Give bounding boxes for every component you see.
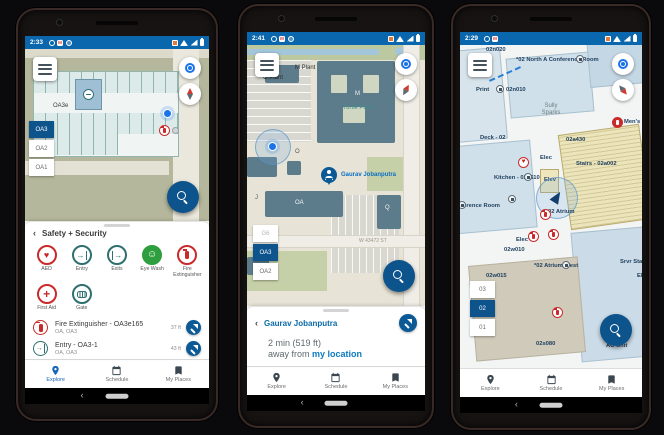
gate-icon (77, 291, 87, 298)
indoor-map[interactable]: 02n020 *02 North A Conference Room Print… (460, 45, 642, 368)
battery-icon (633, 35, 637, 42)
menu-button[interactable] (33, 57, 57, 81)
bottom-nav: Explore Schedule My Places (25, 359, 209, 388)
battery-icon (416, 35, 420, 42)
campus-map[interactable]: M Plant O Plant M Turtle Pond O OA J Q W… (247, 45, 425, 306)
locate-button[interactable] (612, 53, 634, 75)
map-pin-icon (50, 365, 61, 376)
room-label: Stairs - 02a002 (576, 161, 617, 167)
fire-extinguisher-marker[interactable] (552, 307, 563, 318)
exit-icon: → (112, 251, 123, 260)
highlighted-room[interactable] (75, 79, 102, 110)
front-camera (56, 19, 63, 26)
android-back-icon[interactable]: ‹ (81, 391, 84, 400)
room-label: 02s080 (536, 341, 555, 347)
search-button[interactable] (167, 181, 199, 213)
fire-extinguisher-marker[interactable] (528, 231, 539, 242)
sheet-drag-handle[interactable] (323, 309, 349, 312)
map-label: M (355, 91, 360, 97)
room-label: Deck - 02 (480, 135, 505, 141)
category-exits[interactable]: → Exits (99, 243, 134, 282)
gmail-icon: M (492, 36, 498, 42)
clock-icon (271, 36, 277, 42)
floor-chip-oa2[interactable]: OA2 (29, 140, 54, 157)
kitchen-icon[interactable] (524, 173, 532, 181)
room-label: OA3e (53, 103, 68, 109)
room-label: Print (476, 87, 489, 93)
phone-2: 2:41 M (238, 4, 434, 428)
sheet-drag-handle[interactable] (104, 224, 130, 227)
bookmark-icon (173, 365, 184, 376)
person-marker[interactable] (321, 167, 337, 183)
locate-button[interactable] (395, 53, 417, 75)
signal-icon (191, 40, 198, 46)
fire-extinguisher-marker[interactable] (159, 125, 170, 136)
tab-schedule[interactable]: Schedule (86, 360, 147, 388)
map-pin-icon (271, 372, 282, 383)
locate-button[interactable] (179, 57, 201, 79)
floor-selector: G6 OA3 OA2 (253, 225, 278, 280)
home-pill[interactable] (540, 403, 563, 408)
directions-button[interactable] (186, 320, 201, 335)
room-block (460, 140, 538, 235)
floor-selector: OA3 OA2 OA1 (29, 121, 54, 176)
tab-explore[interactable]: Explore (247, 367, 306, 395)
list-item[interactable]: → Entry - OA3-1 OA, OA3 43 ft (33, 338, 201, 359)
signal-icon (624, 36, 631, 42)
tab-schedule[interactable]: Schedule (521, 369, 582, 397)
floor-chip-02[interactable]: 02 (470, 300, 495, 317)
compass-button[interactable] (395, 79, 417, 101)
search-button[interactable] (600, 314, 632, 346)
map-label: Turtle Pond (343, 105, 374, 111)
indoor-map[interactable]: OA3e OA3 OA2 OA1 (25, 49, 209, 221)
cluster-dot[interactable] (172, 127, 179, 134)
signal-icon (407, 36, 414, 42)
room-label: *02 North A Conference Room (516, 57, 599, 63)
room-label: Men's - 02a330 (624, 119, 642, 125)
route-panel: ‹ Gaurav Jobanputra 2 min (519 ft) away … (247, 306, 425, 366)
eta-text: 2 min (519 ft) (247, 335, 425, 348)
map-label: M Plant (295, 65, 315, 71)
bookmark-icon (390, 372, 401, 383)
screenshot-stage: 2:33 M (0, 0, 664, 435)
back-icon[interactable]: ‹ (33, 229, 36, 238)
category-fire-extinguisher[interactable]: Fire Extinguisher (170, 243, 205, 282)
back-icon[interactable]: ‹ (255, 319, 258, 328)
fire-extinguisher-marker[interactable] (548, 229, 559, 240)
phone-3: 2:29 M 02n020 (451, 4, 651, 430)
room-label: 02w010 (504, 247, 525, 253)
building (377, 195, 401, 229)
compass-button[interactable] (179, 83, 201, 105)
tab-explore[interactable]: Explore (460, 369, 521, 397)
aed-icon: ♥ (44, 251, 49, 260)
tab-schedule[interactable]: Schedule (306, 367, 365, 395)
room-label: Kitchen - 02a510 (494, 175, 540, 181)
floor-chip-oa1[interactable]: OA1 (29, 159, 54, 176)
clock-icon (49, 40, 55, 46)
room-row (34, 113, 178, 134)
room-label: Elec (516, 237, 528, 243)
item-title: Entry - OA3-1 (55, 342, 171, 349)
item-distance: 43 ft (171, 346, 181, 352)
tab-my-places[interactable]: My Places (148, 360, 209, 388)
wifi-icon (396, 36, 404, 42)
my-location-link[interactable]: my location (312, 349, 362, 359)
calendar-icon (330, 372, 341, 383)
building (317, 61, 395, 143)
speaker (315, 17, 357, 21)
person-marker-label: Gaurav Jobanputra (341, 172, 396, 178)
calendar-icon (546, 374, 557, 385)
floor-chip-oa2[interactable]: OA2 (253, 263, 278, 280)
fire-extinguisher-icon (185, 251, 189, 259)
conference-room-icon[interactable] (576, 55, 584, 63)
list-item[interactable]: Fire Extinguisher - OA3e165 OA, OA3 37 f… (33, 317, 201, 338)
status-time: 2:41 (252, 35, 265, 42)
bookmark-icon (606, 374, 617, 385)
elevator-icon (83, 89, 94, 100)
directions-icon (190, 324, 198, 332)
room-label: 02n020 (486, 47, 506, 53)
safety-security-panel: ‹ Safety + Security ♥ AED → Entry → Exit… (25, 221, 209, 359)
map-label: O (295, 149, 300, 155)
map-label: J (255, 195, 258, 201)
gmail-icon: M (279, 36, 285, 42)
clock-icon (484, 36, 490, 42)
atrium-icon[interactable] (562, 261, 570, 269)
android-back-icon[interactable]: ‹ (515, 400, 518, 409)
room-label: Srvr Staging (620, 259, 642, 265)
floor-chip-01[interactable]: 01 (470, 319, 495, 336)
gesture-bar: ‹ (25, 388, 209, 404)
gesture-bar: ‹ (460, 397, 642, 413)
front-camera (491, 15, 498, 22)
restroom-marker[interactable] (612, 117, 623, 128)
entry-icon: → (36, 344, 46, 353)
status-bar: 2:33 M (25, 36, 209, 49)
item-subtitle: OA, OA3 (55, 329, 171, 335)
category-grid: ♥ AED → Entry → Exits ☺ Eye Wash (25, 241, 209, 317)
status-bar: 2:29 M (460, 32, 642, 45)
bottom-nav: Explore Schedule My Places (460, 368, 642, 397)
street-label: W 43472 ST (359, 238, 387, 244)
fire-extinguisher-marker[interactable] (540, 209, 551, 220)
item-subtitle: OA, OA3 (55, 350, 171, 356)
speaker (530, 17, 572, 21)
category-entry[interactable]: → Entry (64, 243, 99, 282)
screenshot-icon (605, 36, 611, 42)
entry-icon: → (77, 251, 88, 260)
phone-1: 2:33 M (16, 8, 218, 421)
map-pin-icon (485, 374, 496, 385)
directions-button[interactable] (186, 341, 201, 356)
bottom-nav: Explore Schedule My Places (247, 366, 425, 395)
status-time: 2:33 (30, 39, 43, 46)
map-label: Q (385, 205, 390, 211)
wifi-icon (180, 40, 188, 46)
current-location-dot (268, 142, 277, 151)
courtyard (363, 75, 379, 93)
status-time: 2:29 (465, 35, 478, 42)
map-label: OA (295, 200, 304, 206)
building-outline (33, 71, 179, 157)
tab-my-places[interactable]: My Places (581, 369, 642, 397)
occupant-label: Sully Sparks (538, 103, 564, 117)
item-title: Fire Extinguisher - OA3e165 (55, 321, 171, 328)
tab-my-places[interactable]: My Places (366, 367, 425, 395)
amenity-icon[interactable] (508, 195, 516, 203)
home-pill[interactable] (325, 401, 348, 406)
battery-icon (200, 39, 204, 46)
category-aed[interactable]: ♥ AED (29, 243, 64, 282)
screenshot-icon (172, 40, 178, 46)
calendar-icon (111, 365, 122, 376)
room-label: *02 Atrium West (534, 263, 578, 269)
tab-explore[interactable]: Explore (25, 360, 86, 388)
floor-chip-oa3[interactable]: OA3 (29, 121, 54, 138)
menu-button[interactable] (468, 53, 492, 77)
phone-1-screen: 2:33 M (25, 36, 209, 404)
floor-chip-oa3[interactable]: OA3 (253, 244, 278, 261)
gesture-bar: ‹ (247, 395, 425, 411)
panel-title: Gaurav Jobanputra (264, 319, 337, 328)
room-label: 02a430 (566, 137, 585, 143)
result-list: Fire Extinguisher - OA3e165 OA, OA3 37 f… (25, 317, 209, 359)
item-distance: 37 ft (171, 325, 181, 331)
screenshot-icon (388, 36, 394, 42)
category-gate[interactable]: Gate (64, 282, 99, 315)
search-button[interactable] (383, 260, 415, 292)
first-aid-icon: + (43, 288, 50, 300)
current-location-dot (163, 109, 172, 118)
room-label: Elec (637, 273, 642, 279)
directions-button[interactable] (399, 314, 417, 332)
android-back-icon[interactable]: ‹ (301, 398, 304, 407)
front-camera (278, 15, 285, 22)
status-bar: 2:41 M (247, 32, 425, 45)
phone-3-screen: 2:29 M 02n020 (460, 32, 642, 413)
floor-chip-03[interactable]: 03 (470, 281, 495, 298)
speaker (96, 21, 138, 25)
directions-icon (404, 319, 412, 327)
panel-title: Safety + Security (42, 229, 107, 238)
eye-wash-icon: ☺ (147, 250, 157, 260)
away-text: away from (268, 349, 310, 359)
directions-icon (190, 345, 198, 353)
floor-chip-g6[interactable]: G6 (253, 225, 278, 242)
room-label: 02n010 (506, 87, 526, 93)
category-first-aid[interactable]: + First Aid (29, 282, 64, 315)
room-label: 02 Atrium (548, 209, 575, 215)
category-eye-wash[interactable]: ☺ Eye Wash (135, 243, 170, 282)
floor-selector: 03 02 01 (470, 281, 495, 336)
notification-icon (66, 40, 72, 46)
notification-icon (288, 36, 294, 42)
courtyard (331, 75, 347, 93)
room-label: 02w015 (486, 273, 507, 279)
room-label: Elec (540, 155, 552, 161)
fire-extinguisher-icon (39, 324, 43, 332)
wifi-icon (613, 36, 621, 42)
building (287, 161, 301, 175)
aed-marker[interactable]: ♥ (518, 157, 529, 168)
home-pill[interactable] (106, 394, 129, 399)
gmail-icon: M (57, 40, 63, 46)
menu-button[interactable] (255, 53, 279, 77)
compass-button[interactable] (612, 79, 634, 101)
phone-2-screen: 2:41 M (247, 32, 425, 411)
building (265, 191, 343, 217)
printer-icon[interactable] (496, 85, 504, 93)
